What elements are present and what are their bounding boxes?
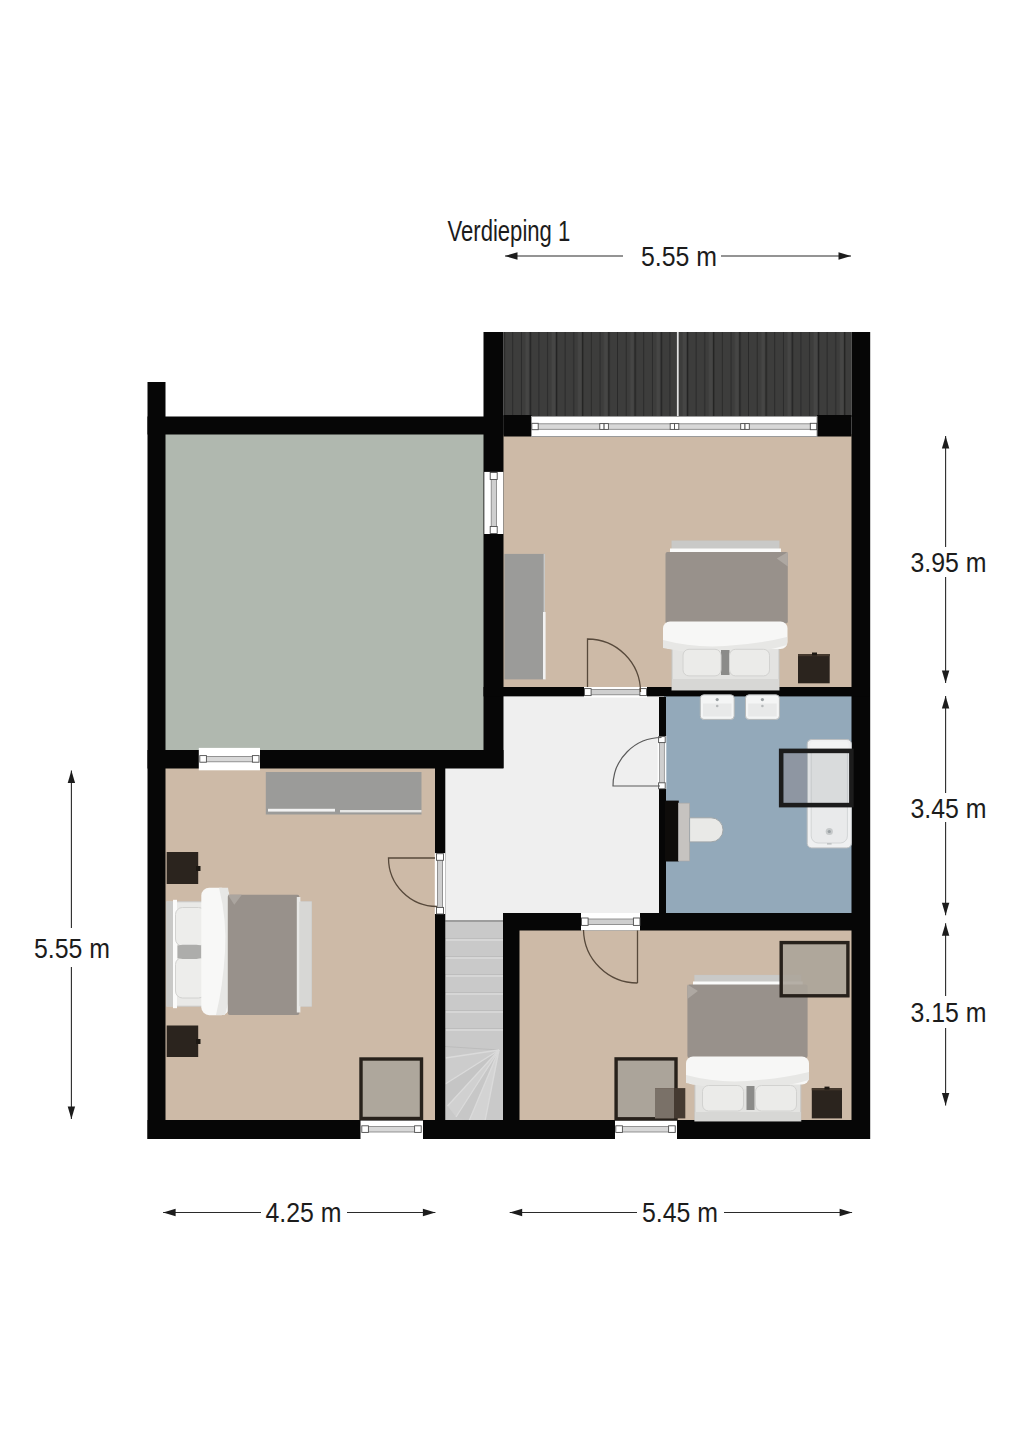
- svg-text:3.15 m: 3.15 m: [911, 997, 987, 1028]
- svg-text:3.95 m: 3.95 m: [911, 547, 987, 578]
- svg-text:3.45 m: 3.45 m: [911, 793, 987, 824]
- svg-text:4.25 m: 4.25 m: [266, 1197, 342, 1228]
- svg-text:5.55 m: 5.55 m: [34, 933, 110, 964]
- svg-text:5.45 m: 5.45 m: [642, 1197, 718, 1228]
- svg-text:5.55 m: 5.55 m: [641, 241, 717, 272]
- svg-text:Verdieping 1: Verdieping 1: [448, 214, 571, 247]
